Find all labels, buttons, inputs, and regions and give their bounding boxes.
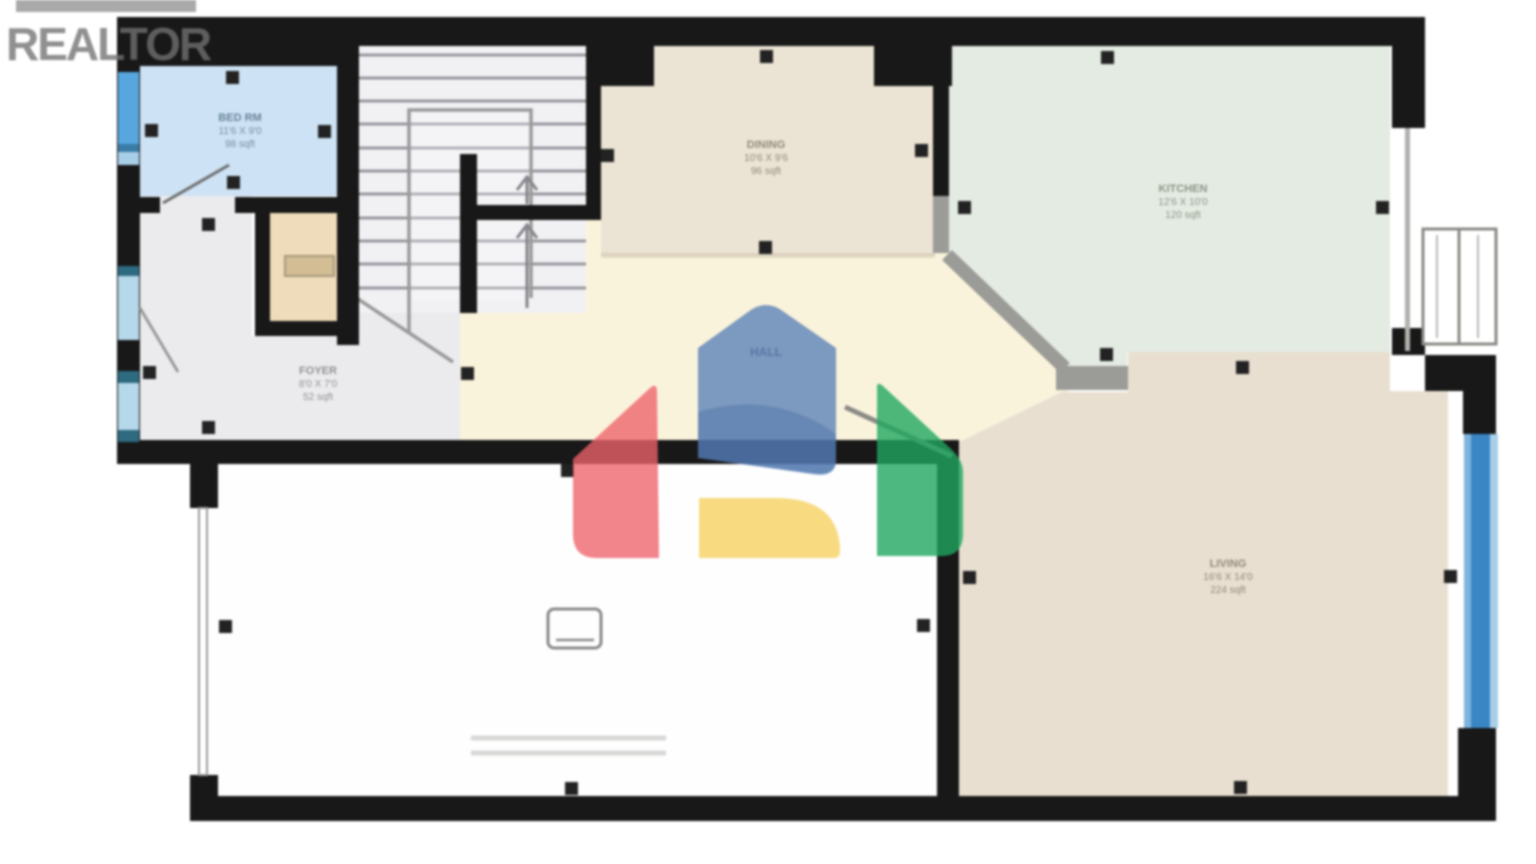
svg-text:10'6 X 9'6: 10'6 X 9'6 bbox=[744, 153, 788, 164]
svg-text:96 sqft: 96 sqft bbox=[751, 166, 781, 177]
svg-text:12'6 X 10'0: 12'6 X 10'0 bbox=[1158, 197, 1208, 208]
svg-text:DINING: DINING bbox=[747, 139, 786, 151]
svg-text:KITCHEN: KITCHEN bbox=[1159, 183, 1208, 195]
svg-text:52 sqft: 52 sqft bbox=[303, 392, 333, 403]
svg-text:REALTOR: REALTOR bbox=[6, 18, 212, 70]
svg-text:8'0 X 7'0: 8'0 X 7'0 bbox=[299, 379, 338, 390]
svg-text:FOYER: FOYER bbox=[299, 365, 337, 377]
svg-text:BED RM: BED RM bbox=[218, 112, 261, 124]
svg-text:120 sqft: 120 sqft bbox=[1165, 210, 1201, 221]
svg-text:LIVING: LIVING bbox=[1210, 558, 1247, 570]
svg-text:224 sqft: 224 sqft bbox=[1210, 585, 1246, 596]
svg-text:16'6 X 14'0: 16'6 X 14'0 bbox=[1203, 572, 1253, 583]
svg-text:98 sqft: 98 sqft bbox=[225, 139, 255, 150]
svg-text:11'6 X 9'0: 11'6 X 9'0 bbox=[218, 126, 262, 137]
